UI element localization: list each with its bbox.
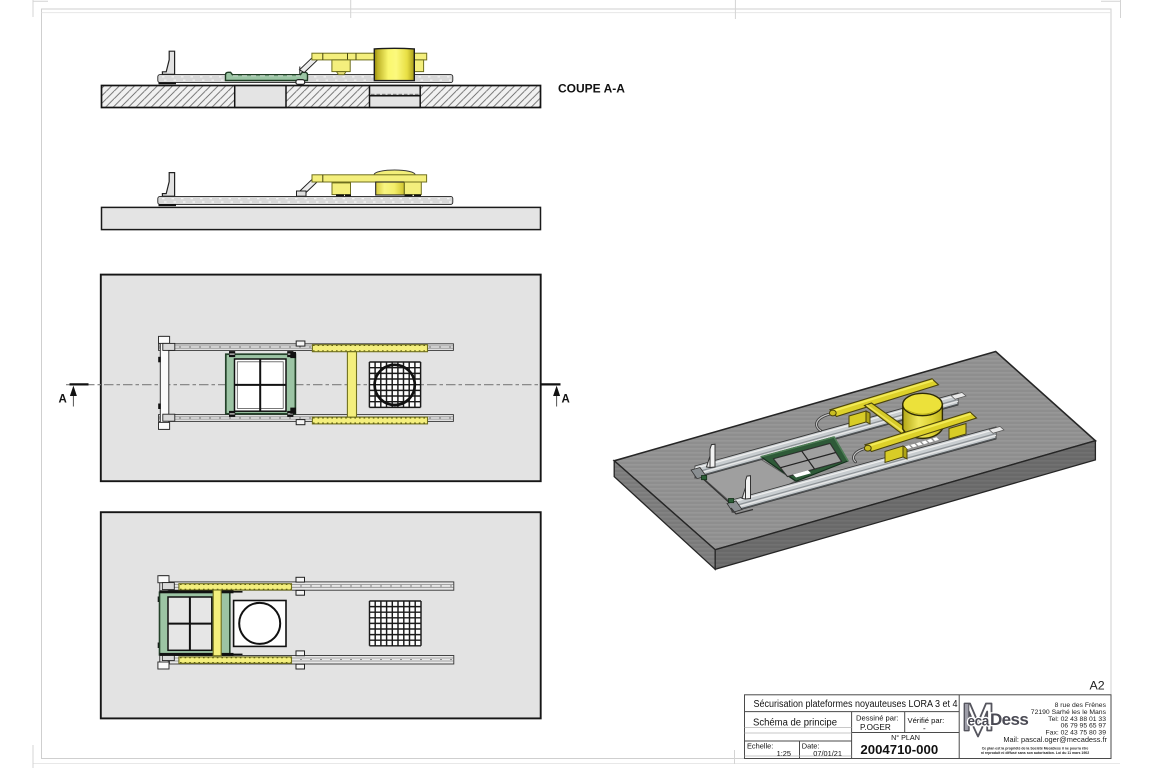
- svg-text:COUPE A-A: COUPE A-A: [558, 81, 625, 95]
- svg-text:2004710-000: 2004710-000: [860, 742, 938, 757]
- svg-text:Echelle:: Echelle:: [747, 741, 773, 750]
- svg-text:A2: A2: [1090, 678, 1105, 692]
- svg-text:Vérifié par:: Vérifié par:: [908, 716, 945, 725]
- svg-text:A: A: [562, 394, 570, 406]
- svg-text:A: A: [59, 394, 67, 406]
- svg-text:eca: eca: [968, 714, 990, 729]
- svg-text:N° PLAN: N° PLAN: [891, 733, 920, 742]
- svg-text:Dess: Dess: [990, 710, 1028, 729]
- svg-text:Ce plan est la propriété de la: Ce plan est la propriété de la Société M…: [982, 747, 1089, 751]
- svg-text:Dessiné par:: Dessiné par:: [856, 713, 899, 722]
- svg-text:Schéma de principe: Schéma de principe: [753, 718, 837, 729]
- svg-text:07/01/21: 07/01/21: [813, 749, 842, 758]
- svg-text:1:25: 1:25: [777, 749, 791, 758]
- svg-text:-: -: [923, 724, 926, 733]
- svg-text:ni reproduit ni diffusé sans s: ni reproduit ni diffusé sans son autoris…: [981, 751, 1089, 755]
- svg-text:P.OGER: P.OGER: [860, 723, 891, 732]
- svg-text:Sécurisation plateformes noyau: Sécurisation plateformes noyauteuses LOR…: [754, 699, 959, 710]
- svg-text:Mail: pascal.oger@mecadess.fr: Mail: pascal.oger@mecadess.fr: [1003, 735, 1107, 744]
